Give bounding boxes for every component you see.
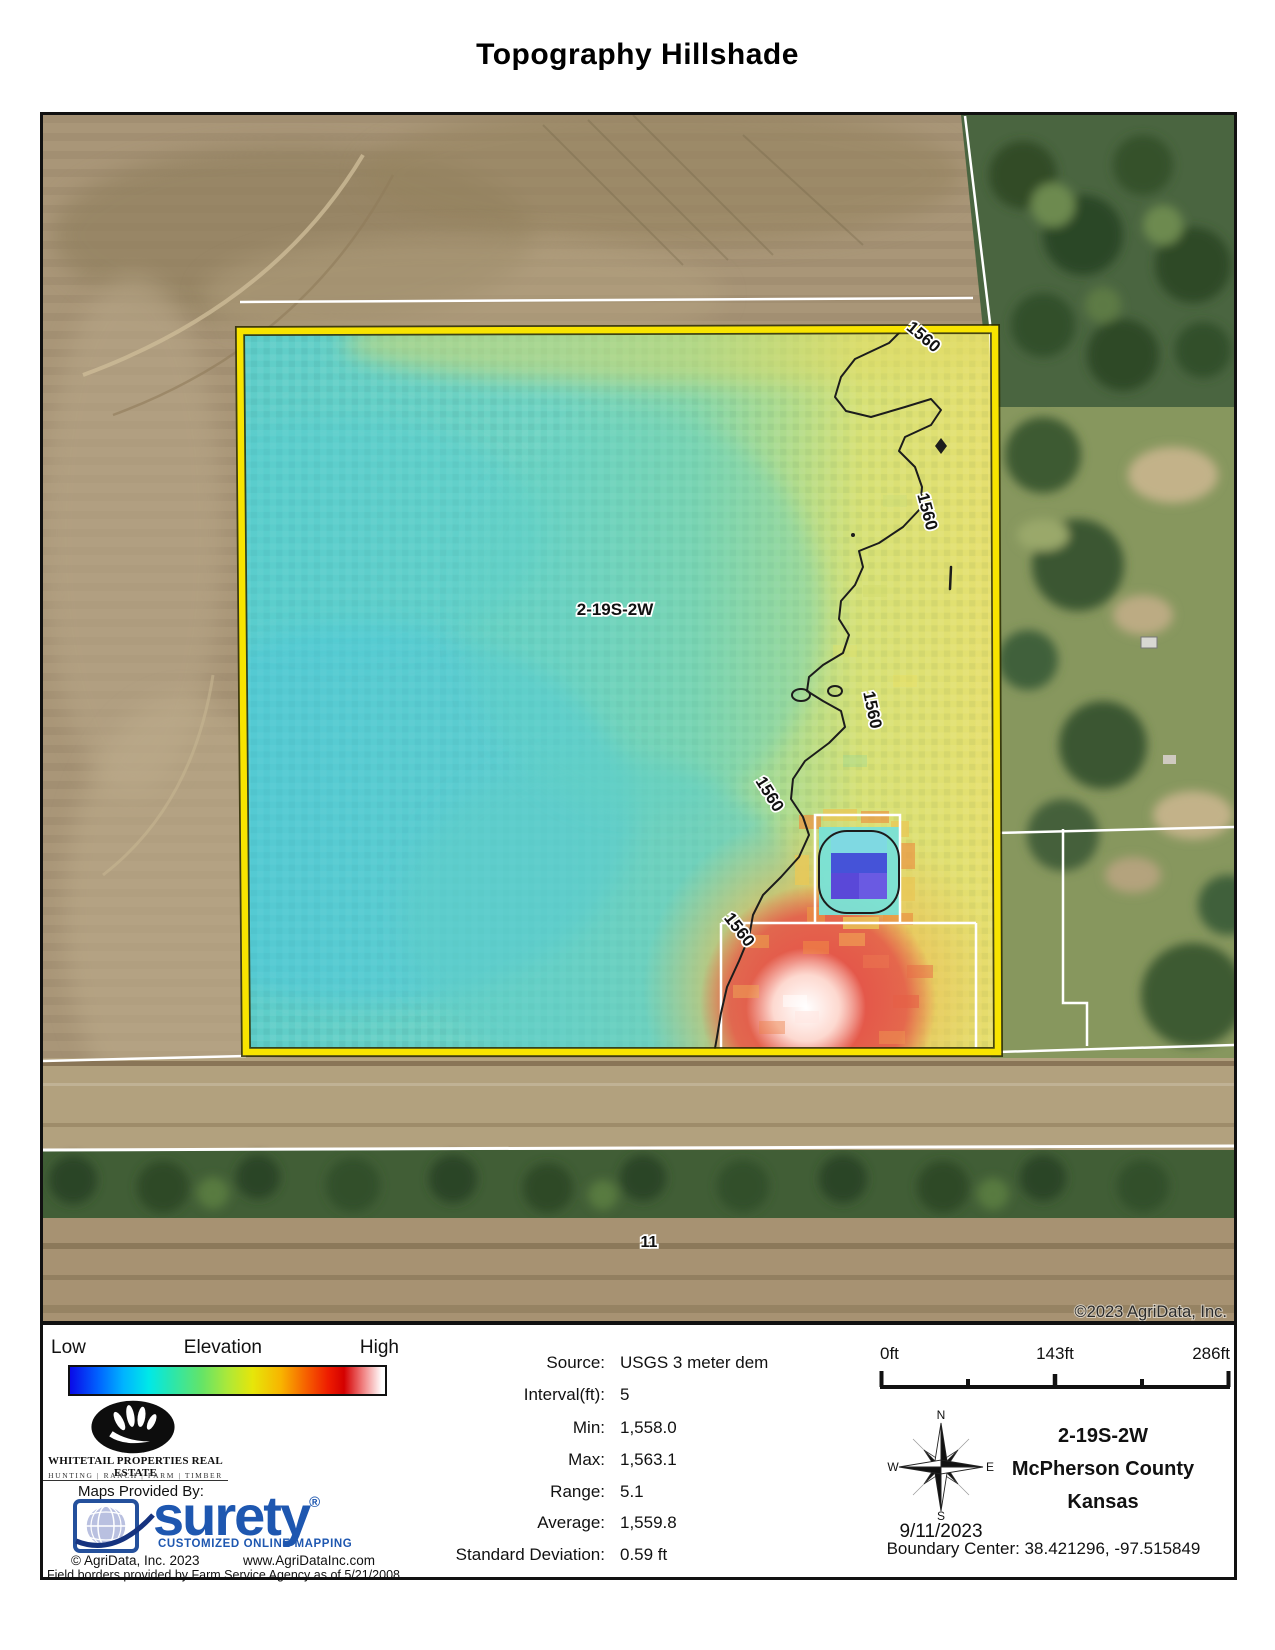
map-copyright: ©2023 AgriData, Inc. <box>1075 1303 1228 1321</box>
stat-row-interval: Interval(ft):5 <box>343 1385 823 1405</box>
whitetail-logo <box>53 1399 213 1455</box>
scale-label-143: 143ft <box>1036 1344 1074 1363</box>
boundary-center: Boundary Center: 38.421296, -97.515849 <box>853 1539 1234 1559</box>
legend-title: Elevation <box>184 1337 262 1359</box>
field-borders-note: Field borders provided by Farm Service A… <box>47 1568 403 1582</box>
state-label: Kansas <box>973 1491 1233 1514</box>
stat-label: Average: <box>343 1513 605 1533</box>
map-svg: 1560 1560 1560 1560 1560 2-19S-2W 11 ©20… <box>43 115 1234 1321</box>
map-frame: 1560 1560 1560 1560 1560 2-19S-2W 11 ©20… <box>40 112 1237 1580</box>
parcel-label: 2-19S-2W <box>577 600 654 619</box>
stat-row-range: Range:5.1 <box>343 1482 823 1502</box>
scale-bar-line <box>880 1371 1230 1387</box>
farm-structure <box>1163 755 1176 764</box>
stat-label: Source: <box>343 1353 605 1373</box>
stat-value: 1,563.1 <box>620 1450 677 1470</box>
stat-label: Max: <box>343 1450 605 1470</box>
county-label: McPherson County <box>973 1458 1233 1481</box>
map-image: 1560 1560 1560 1560 1560 2-19S-2W 11 ©20… <box>43 115 1234 1325</box>
stat-label: Min: <box>343 1418 605 1438</box>
stat-row-average: Average:1,559.8 <box>343 1513 823 1533</box>
stat-value: 0.59 ft <box>620 1545 667 1565</box>
whitetail-tagline: HUNTING | RANCH | FARM | TIMBER <box>43 1471 228 1480</box>
stat-label: Range: <box>343 1482 605 1502</box>
scale-bar: 0ft 143ft 286ft <box>878 1341 1232 1393</box>
scale-label-0: 0ft <box>880 1344 899 1363</box>
map-footer: Low Elevation High WHITETAIL PROPERTIES … <box>43 1325 1234 1574</box>
farm-structure <box>1141 637 1157 648</box>
stat-row-stddev: Standard Deviation:0.59 ft <box>343 1545 823 1565</box>
surety-tagline: CUSTOMIZED ONLINE MAPPING <box>158 1538 352 1550</box>
page-title: Topography Hillshade <box>0 38 1275 72</box>
vegetation-right-strip <box>991 407 1234 1058</box>
stat-row-min: Min:1,558.0 <box>343 1418 823 1438</box>
compass-s: S <box>937 1509 945 1521</box>
stat-value: 5 <box>620 1385 629 1405</box>
stat-value: 1,559.8 <box>620 1513 677 1533</box>
trees-top-right <box>961 115 1234 407</box>
stat-value: USGS 3 meter dem <box>620 1353 768 1373</box>
stat-value: 5.1 <box>620 1482 644 1502</box>
compass-n: N <box>937 1409 946 1422</box>
scale-label-286: 286ft <box>1192 1344 1230 1363</box>
stat-label: Interval(ft): <box>343 1385 605 1405</box>
township-label: 2-19S-2W <box>973 1425 1233 1448</box>
elevation-gradient-bar <box>68 1365 387 1396</box>
stat-row-max: Max:1,563.1 <box>343 1450 823 1470</box>
report-sheet: Topography Hillshade <box>0 0 1275 1650</box>
stat-row-source: Source:USGS 3 meter dem <box>343 1353 823 1373</box>
stat-value: 1,558.0 <box>620 1418 677 1438</box>
registered-mark: ® <box>309 1494 320 1511</box>
road-label: 11 <box>641 1234 658 1251</box>
legend-low-label: Low <box>51 1337 86 1359</box>
road-bottom <box>43 1058 1234 1321</box>
agridata-copyright: © AgriData, Inc. 2023 <box>71 1553 200 1568</box>
stat-label: Standard Deviation: <box>343 1545 605 1565</box>
globe-icon <box>73 1499 155 1553</box>
compass-w: W <box>887 1460 899 1474</box>
